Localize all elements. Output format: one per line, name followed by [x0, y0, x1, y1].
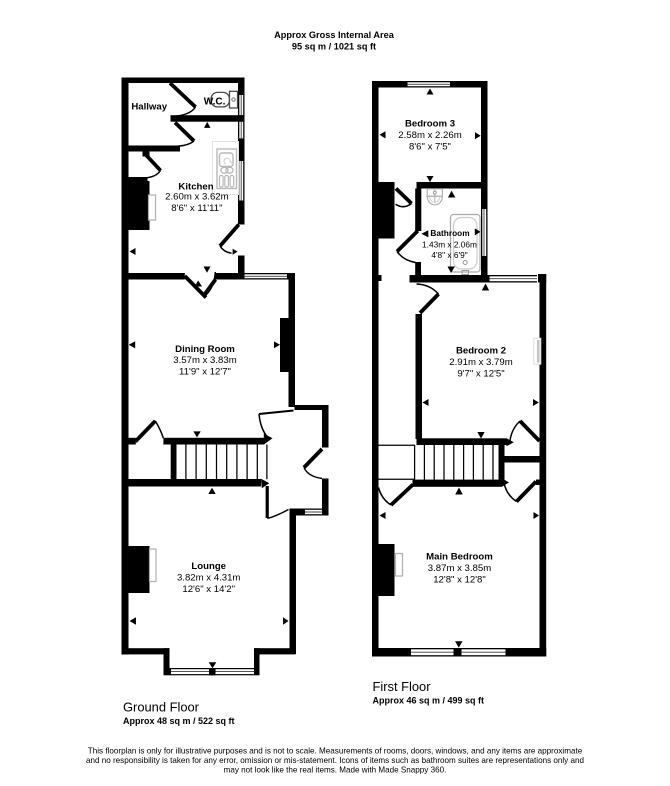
svg-text:9'7" x 12'5": 9'7" x 12'5"	[457, 368, 504, 379]
svg-text:may not look like the real ite: may not look like the real items. Made w…	[224, 766, 447, 775]
svg-text:Approx 46 sq m / 499 sq ft: Approx 46 sq m / 499 sq ft	[373, 696, 485, 706]
svg-text:3.82m x 4.31m: 3.82m x 4.31m	[177, 573, 240, 584]
svg-text:3.87m x 3.85m: 3.87m x 3.85m	[428, 563, 491, 574]
svg-text:Main Bedroom: Main Bedroom	[426, 551, 493, 562]
svg-text:95 sq m / 1021 sq ft: 95 sq m / 1021 sq ft	[292, 42, 376, 52]
svg-text:Hallway: Hallway	[131, 102, 167, 113]
svg-text:12'8" x 12'8": 12'8" x 12'8"	[433, 574, 486, 585]
svg-text:Approx Gross Internal Area: Approx Gross Internal Area	[274, 30, 395, 40]
svg-text:2.58m x 2.26m: 2.58m x 2.26m	[398, 130, 461, 141]
svg-text:W.C.: W.C.	[204, 97, 226, 108]
svg-text:1.43m x 2.06m: 1.43m x 2.06m	[422, 239, 477, 249]
svg-text:3.57m x 3.83m: 3.57m x 3.83m	[173, 355, 236, 366]
svg-text:This floorplan is only for ill: This floorplan is only for illustrative …	[88, 746, 583, 755]
svg-text:Lounge: Lounge	[191, 561, 226, 572]
svg-text:8'6" x 7'5": 8'6" x 7'5"	[409, 141, 451, 152]
svg-text:Approx 48 sq m / 522 sq ft: Approx 48 sq m / 522 sq ft	[123, 716, 235, 726]
svg-text:11'9" x 12'7": 11'9" x 12'7"	[179, 367, 231, 378]
svg-text:12'6" x 14'2": 12'6" x 14'2"	[182, 584, 235, 595]
svg-text:8'6" x 11'11": 8'6" x 11'11"	[171, 203, 222, 214]
svg-text:and no responsibility is taken: and no responsibility is taken for any e…	[86, 756, 584, 765]
svg-text:First Floor: First Floor	[373, 679, 432, 694]
svg-text:2.91m x 3.79m: 2.91m x 3.79m	[449, 357, 512, 368]
svg-text:Bedroom 2: Bedroom 2	[456, 345, 506, 356]
svg-text:2.60m x 3.62m: 2.60m x 3.62m	[165, 191, 228, 202]
svg-text:Bedroom 3: Bedroom 3	[405, 119, 455, 130]
svg-text:Bathroom: Bathroom	[430, 228, 469, 238]
svg-text:Ground Floor: Ground Floor	[123, 700, 200, 715]
svg-text:Dining Room: Dining Room	[175, 344, 235, 355]
svg-text:4'8" x 6'9": 4'8" x 6'9"	[431, 250, 467, 260]
